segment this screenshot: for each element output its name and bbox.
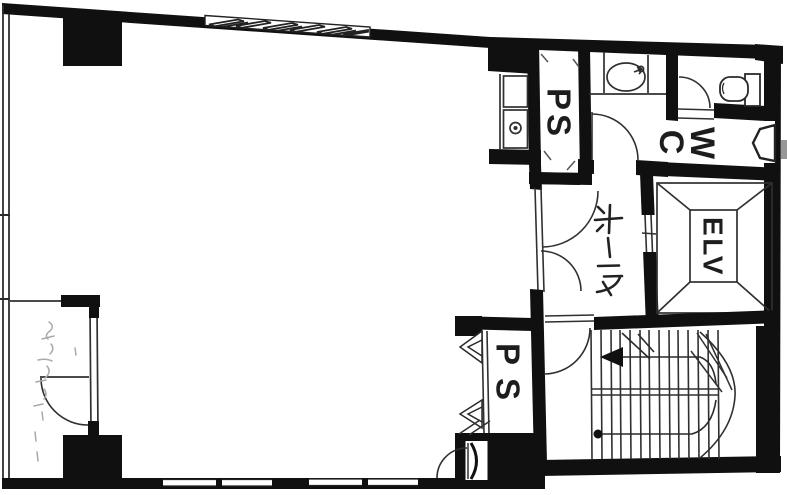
svg-text:PS: PS [490, 343, 527, 413]
svg-text:PS: PS [541, 88, 578, 140]
svg-text:W: W [683, 127, 721, 160]
svg-text:ELV: ELV [698, 217, 729, 277]
